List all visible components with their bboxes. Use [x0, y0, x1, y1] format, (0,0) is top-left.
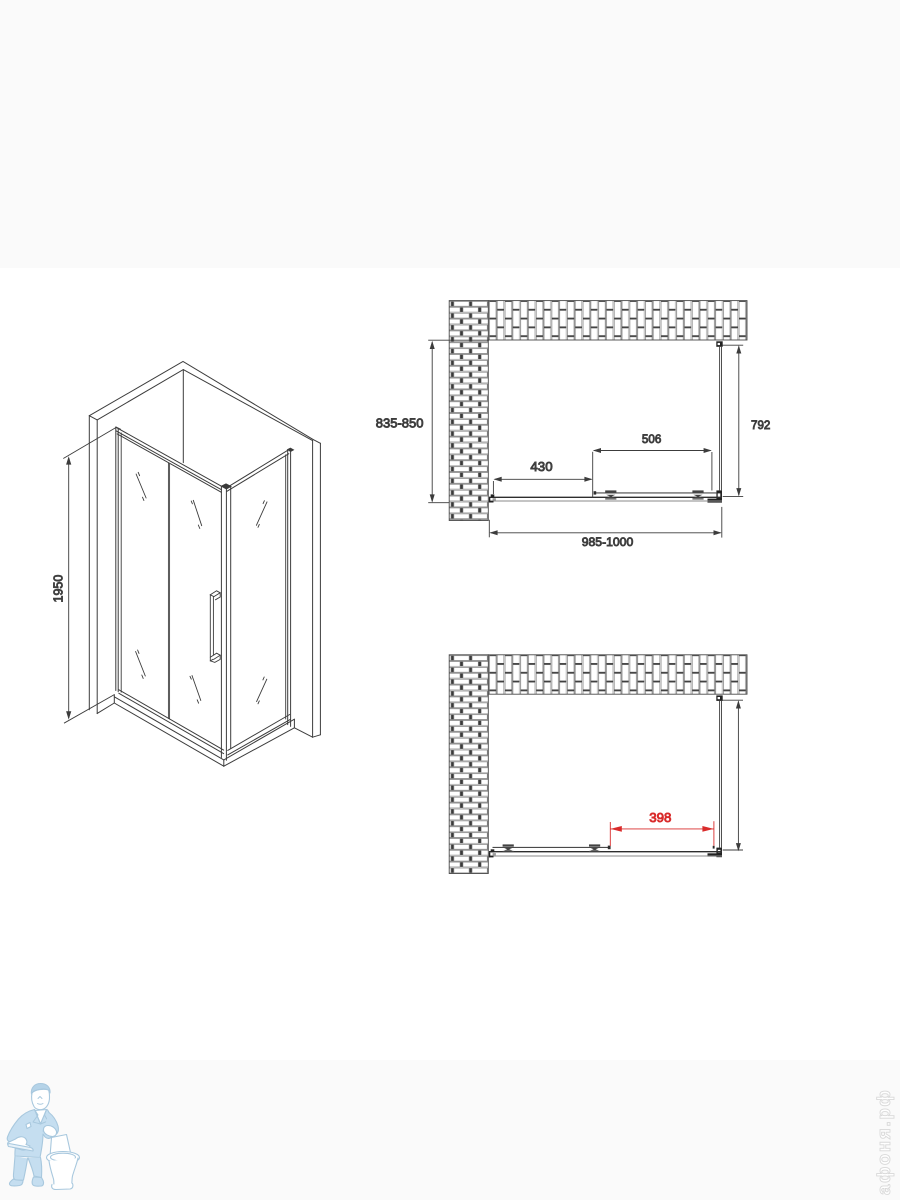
svg-text:430: 430: [530, 459, 552, 474]
svg-text:афоня.рф: афоня.рф: [873, 1088, 894, 1195]
svg-text:985-1000: 985-1000: [582, 535, 634, 549]
svg-text:835-850: 835-850: [376, 415, 424, 430]
svg-text:1950: 1950: [52, 575, 66, 603]
svg-text:506: 506: [642, 433, 661, 446]
svg-text:398: 398: [649, 810, 671, 825]
svg-text:792: 792: [751, 419, 770, 432]
